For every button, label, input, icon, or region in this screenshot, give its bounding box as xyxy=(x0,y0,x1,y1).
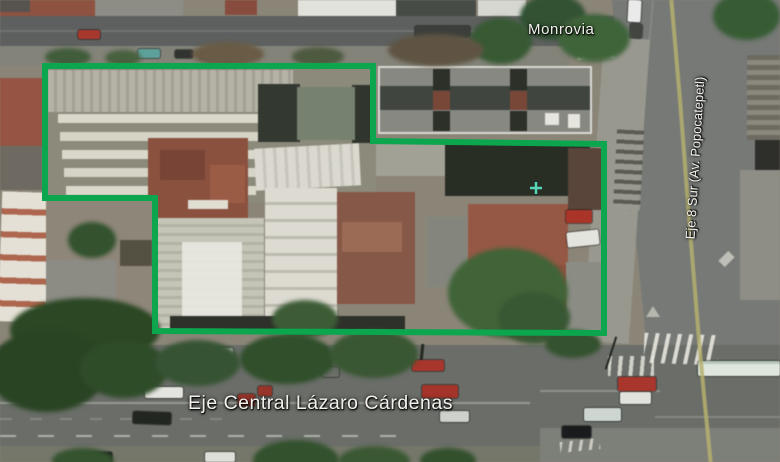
street-label-eje-central: Eje Central Lázaro Cárdenas xyxy=(188,392,453,415)
street-label-monrovia: Monrovia xyxy=(528,21,595,38)
property-boundary xyxy=(45,66,604,333)
satellite-map[interactable]: Monrovia Eje Central Lázaro Cárdenas Eje… xyxy=(0,0,780,462)
map-marker-cross xyxy=(530,182,542,194)
